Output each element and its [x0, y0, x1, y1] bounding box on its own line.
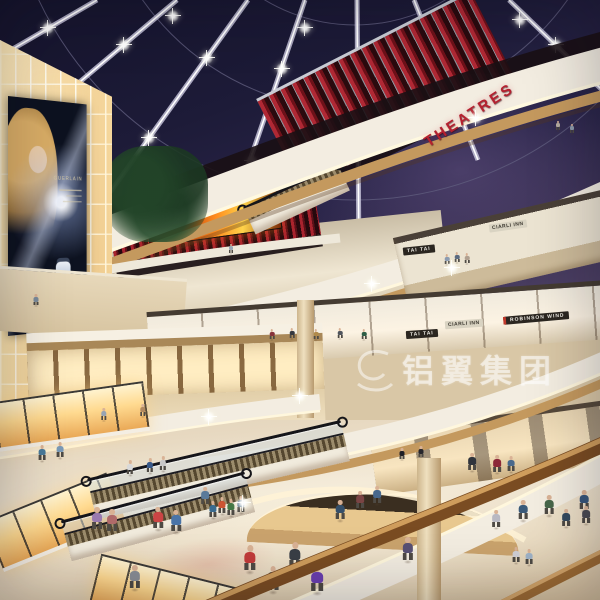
mall-atrium-scene: THEATRES GUERLAIN TAI TAI CIARLI INN TAI…: [0, 0, 600, 600]
swirl-logo-icon: [350, 344, 396, 394]
watermark: 铝翼集团: [350, 344, 558, 394]
swirl-stroke: [358, 351, 392, 390]
foreground-handrails: [0, 0, 600, 600]
corner-handrail-highlight: [421, 527, 600, 600]
wood-handrail-highlight: [132, 418, 600, 600]
watermark-text: 铝翼集团: [402, 346, 558, 392]
wood-handrail: [130, 424, 600, 600]
